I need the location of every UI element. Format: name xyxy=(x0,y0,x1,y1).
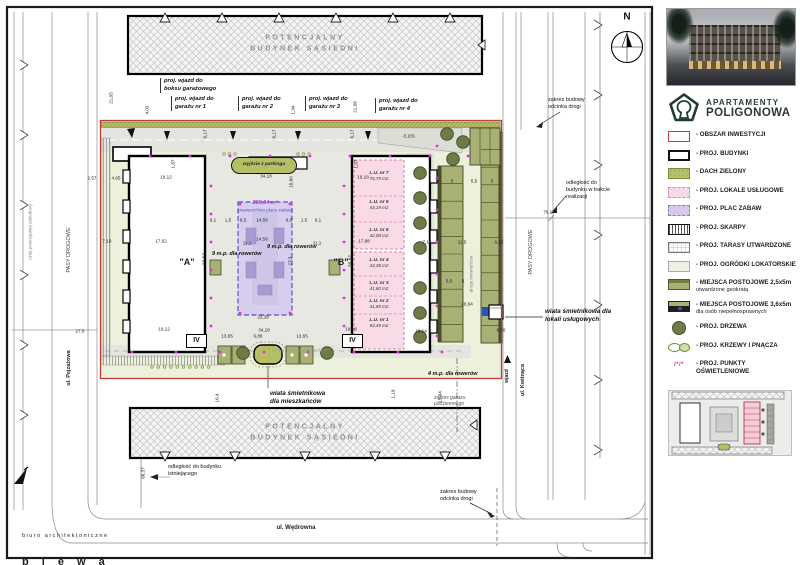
legend-item: - PROJ. PUNKTY OŚWIETLENIOWE xyxy=(668,360,798,376)
tree-icon xyxy=(414,242,427,255)
brand-name-line1: APARTAMENTY xyxy=(706,98,791,107)
north-arrow-icon xyxy=(612,32,643,63)
shrub-icon xyxy=(182,366,185,369)
brand-name: APARTAMENTY POLIGONOWA xyxy=(706,98,791,119)
legend-label: - OBSZAR INWESTYCJI xyxy=(696,131,765,139)
light-point-icon xyxy=(239,203,242,206)
light-point-icon xyxy=(436,305,439,308)
light-point-icon xyxy=(189,155,192,158)
light-point-icon xyxy=(131,351,134,354)
shrub-icon xyxy=(189,366,192,369)
architect-block: biuro architektoniczne p l e w a ul. Nie… xyxy=(22,515,110,565)
legend-label: - PROJ. OGRÓDKI LOKATORSKIE xyxy=(696,261,796,269)
legend-item: - MIEJSCA POSTOJOWE 2,5x5mutwardzone geo… xyxy=(668,279,798,294)
shrub-icon xyxy=(170,366,173,369)
light-point-icon xyxy=(397,351,400,354)
light-point-icon xyxy=(210,297,213,300)
slope-hatch-bottom xyxy=(102,356,225,365)
shrub-icon xyxy=(201,366,204,369)
render-tree-left xyxy=(666,8,699,69)
light-point-icon xyxy=(343,297,346,300)
light-point-icon xyxy=(210,325,213,328)
light-point-icon xyxy=(263,351,266,354)
building-b-label: "B" xyxy=(333,257,348,267)
legend-item: - PROJ. LOKALE USŁUGOWE xyxy=(668,187,798,198)
light-point-icon xyxy=(175,351,178,354)
left-street-label: ul. Pejzażowa xyxy=(66,350,72,385)
legend-label: - PROJ. LOKALE USŁUGOWE xyxy=(696,187,784,195)
legend-label: - PROJ. PLAC ZABAW xyxy=(696,205,761,213)
light-point-icon xyxy=(210,269,213,272)
right-street-label: ul. Kwitnąca xyxy=(520,364,526,396)
shrub-icon xyxy=(163,366,166,369)
walkway-label: ciąg pieszo-jezdny xyxy=(272,348,327,353)
note-garage-extent: zakres garażu podziemnego xyxy=(434,395,465,408)
neighbor-bottom-label: POTENCJALNY BUDYNEK SĄSIEDNI xyxy=(195,423,415,444)
legend-item: - OBSZAR INWESTYCJI xyxy=(668,131,798,142)
legend-swatch-budynki xyxy=(668,150,690,161)
legend-item: - MIEJSCA POSTOJOWE 3,6x5mdla osób niepe… xyxy=(668,301,798,316)
light-point-icon xyxy=(467,155,470,158)
light-point-icon xyxy=(210,213,213,216)
tree-icon xyxy=(457,136,470,149)
legend-item: - PROJ. KRZEWY I PNĄCZA xyxy=(668,342,798,353)
plan-linework xyxy=(0,0,660,565)
left-road-band-label: PASY DROGOWE xyxy=(66,227,72,272)
note-road-extent-top: zakres budowy odcinka drogi xyxy=(548,97,585,111)
legend-item: - PROJ. OGRÓDKI LOKATORSKIE xyxy=(668,261,798,272)
note-bikes-9b: 9 m.p. dla rowerów xyxy=(267,244,317,251)
light-point-icon xyxy=(436,177,439,180)
light-point-icon xyxy=(441,351,444,354)
light-point-icon xyxy=(343,325,346,328)
building-render-photo xyxy=(666,8,796,86)
parking-exit-capsule: wyjście z parkingu xyxy=(231,157,297,174)
legend-label: - DACH ZIELONY xyxy=(696,168,746,176)
slope-hatch-left xyxy=(102,138,110,356)
light-point-icon xyxy=(210,241,213,244)
legend-swatch-drzewa xyxy=(668,323,690,334)
note-ramp-slope: -5,8% xyxy=(402,134,415,140)
info-panel: APARTAMENTY POLIGONOWA - OBSZAR INWESTYC… xyxy=(660,0,800,565)
note-bikes-4: 4 m.p. dla rowerów xyxy=(428,371,478,378)
shrub-icon xyxy=(302,153,305,156)
architect-office-type: biuro architektoniczne xyxy=(22,533,110,539)
brand-name-line2: POLIGONOWA xyxy=(706,107,791,119)
legend-label: - PROJ. BUDYNKI xyxy=(696,150,748,158)
light-point-icon xyxy=(436,241,439,244)
north-label: N xyxy=(623,12,630,23)
drawing-area: IV IV POTENCJALNY BUDYNEK SĄSIEDNI POTEN… xyxy=(0,0,660,565)
legend-swatch-ogrodki xyxy=(668,261,690,272)
storeys-box-a: IV xyxy=(186,334,207,348)
shrub-icon xyxy=(157,366,160,369)
light-point-icon xyxy=(229,155,232,158)
playground-caption: powierzchnia placu zabaw xyxy=(220,208,310,213)
architect-name: p l e w a xyxy=(22,557,110,565)
legend-swatch-obszar xyxy=(668,131,690,142)
note-shelter-services: wiata śmietnikowa dla lokali usługowych xyxy=(545,308,611,324)
legend-item: - PROJ. TARASY UTWARDZONE xyxy=(668,242,798,253)
storeys-box-b: IV xyxy=(342,334,363,348)
light-point-icon xyxy=(429,155,432,158)
tree-icon xyxy=(414,192,427,205)
building-line-label: Linia potencjalnej zabudowy xyxy=(28,204,33,260)
light-point-icon xyxy=(436,209,439,212)
light-point-icon xyxy=(353,351,356,354)
brand-block: APARTAMENTY POLIGONOWA xyxy=(668,92,796,124)
building-a-label: "A" xyxy=(179,257,194,267)
playground xyxy=(238,202,292,315)
light-point-icon xyxy=(343,213,346,216)
shrub-icon xyxy=(207,366,210,369)
light-point-icon xyxy=(289,203,292,206)
legend-swatch-dach xyxy=(668,168,690,179)
legend-item: - PROJ. SKARPY xyxy=(668,224,798,235)
light-point-icon xyxy=(389,155,392,158)
legend-swatch-tarasy xyxy=(668,242,690,253)
legend-swatch-lokale xyxy=(668,187,690,198)
tree-icon xyxy=(447,153,460,166)
light-point-icon xyxy=(289,312,292,315)
legend-label: - MIEJSCA POSTOJOWE 2,5x5mutwardzone geo… xyxy=(696,279,791,294)
legend-item: - PROJ. BUDYNKI xyxy=(668,150,798,161)
legend-sublabel: dla osób niepełnosprawnych xyxy=(696,309,791,316)
legend-label: - PROJ. PUNKTY OŚWIETLENIOWE xyxy=(696,360,798,376)
legend-item: - PROJ. PLAC ZABAW xyxy=(668,205,798,216)
internal-road-label: droga wewnętrzna xyxy=(469,256,474,293)
legend-label: - PROJ. DRZEWA xyxy=(696,323,747,331)
light-point-icon xyxy=(343,241,346,244)
note-road-extent-bottom: zakres budowy odcinka drogi xyxy=(440,489,477,503)
tree-icon xyxy=(414,217,427,230)
shrub-icon xyxy=(195,366,198,369)
bottom-street-label: ul. Wędrowna xyxy=(277,525,316,531)
legend-label: - PROJ. SKARPY xyxy=(696,224,746,232)
light-point-icon xyxy=(239,312,242,315)
entry-label: wjazd xyxy=(504,369,510,383)
tree-icon xyxy=(414,331,427,344)
legend-swatch-krzewy xyxy=(668,342,690,353)
note-distance-existing: odległość do budynku istniejącego xyxy=(168,464,221,478)
light-point-icon xyxy=(436,335,439,338)
shrub-icon xyxy=(176,366,179,369)
note-shelter-residents: wiata śmietnikowa dla mieszkańców xyxy=(270,390,325,406)
note-bikes-9a: 9 m.p. dla rowerów xyxy=(212,251,262,258)
render-tree-right xyxy=(767,8,796,73)
light-point-icon xyxy=(210,185,213,188)
legend-list: - OBSZAR INWESTYCJI- PROJ. BUDYNKI- DACH… xyxy=(668,131,798,383)
light-point-icon xyxy=(343,269,346,272)
tree-icon xyxy=(414,167,427,180)
legend-label: - PROJ. KRZEWY I PNĄCZA xyxy=(696,342,778,350)
legend-item: - DACH ZIELONY xyxy=(668,168,798,179)
light-point-icon xyxy=(309,155,312,158)
light-point-icon xyxy=(349,155,352,158)
location-minimap xyxy=(668,390,792,456)
light-point-icon xyxy=(436,273,439,276)
right-road-band-label: PASY DROGOWE xyxy=(528,229,534,274)
light-point-icon xyxy=(436,145,439,148)
legend-label: - MIEJSCA POSTOJOWE 3,6x5mdla osób niepe… xyxy=(696,301,791,316)
shrub-icon xyxy=(223,153,226,156)
parking-top xyxy=(470,128,500,165)
neighbor-top-label: POTENCJALNY BUDYNEK SĄSIEDNI xyxy=(195,34,415,55)
legend-item: - PROJ. DRZEWA xyxy=(668,323,798,334)
tree-icon xyxy=(237,347,250,360)
legend-swatch-punkty xyxy=(668,360,690,371)
tree-icon xyxy=(441,128,454,141)
legend-swatch-plac xyxy=(668,205,690,216)
legend-swatch-postojowe xyxy=(668,279,690,290)
shrub-icon xyxy=(151,366,154,369)
brand-logo-icon xyxy=(668,92,700,124)
shrub-icon xyxy=(234,153,237,156)
playground-area-label: 298,04 m² xyxy=(252,200,277,206)
light-point-icon xyxy=(219,351,222,354)
tree-icon xyxy=(414,282,427,295)
legend-sublabel: utwardzone geokratą xyxy=(696,287,791,294)
light-point-icon xyxy=(149,155,152,158)
legend-swatch-skarpy xyxy=(668,224,690,235)
legend-swatch-postojowe-disabled xyxy=(668,301,690,312)
light-point-icon xyxy=(343,185,346,188)
service-units xyxy=(354,160,404,349)
green-roof-strip xyxy=(101,122,500,128)
note-distance-under-construction: odległość do budynku w trakcie realizacj… xyxy=(566,180,610,201)
legend-label: - PROJ. TARASY UTWARDZONE xyxy=(696,242,791,250)
tree-icon xyxy=(414,307,427,320)
site-plan-page: IV IV POTENCJALNY BUDYNEK SĄSIEDNI POTEN… xyxy=(0,0,800,565)
shrub-icon xyxy=(297,153,300,156)
